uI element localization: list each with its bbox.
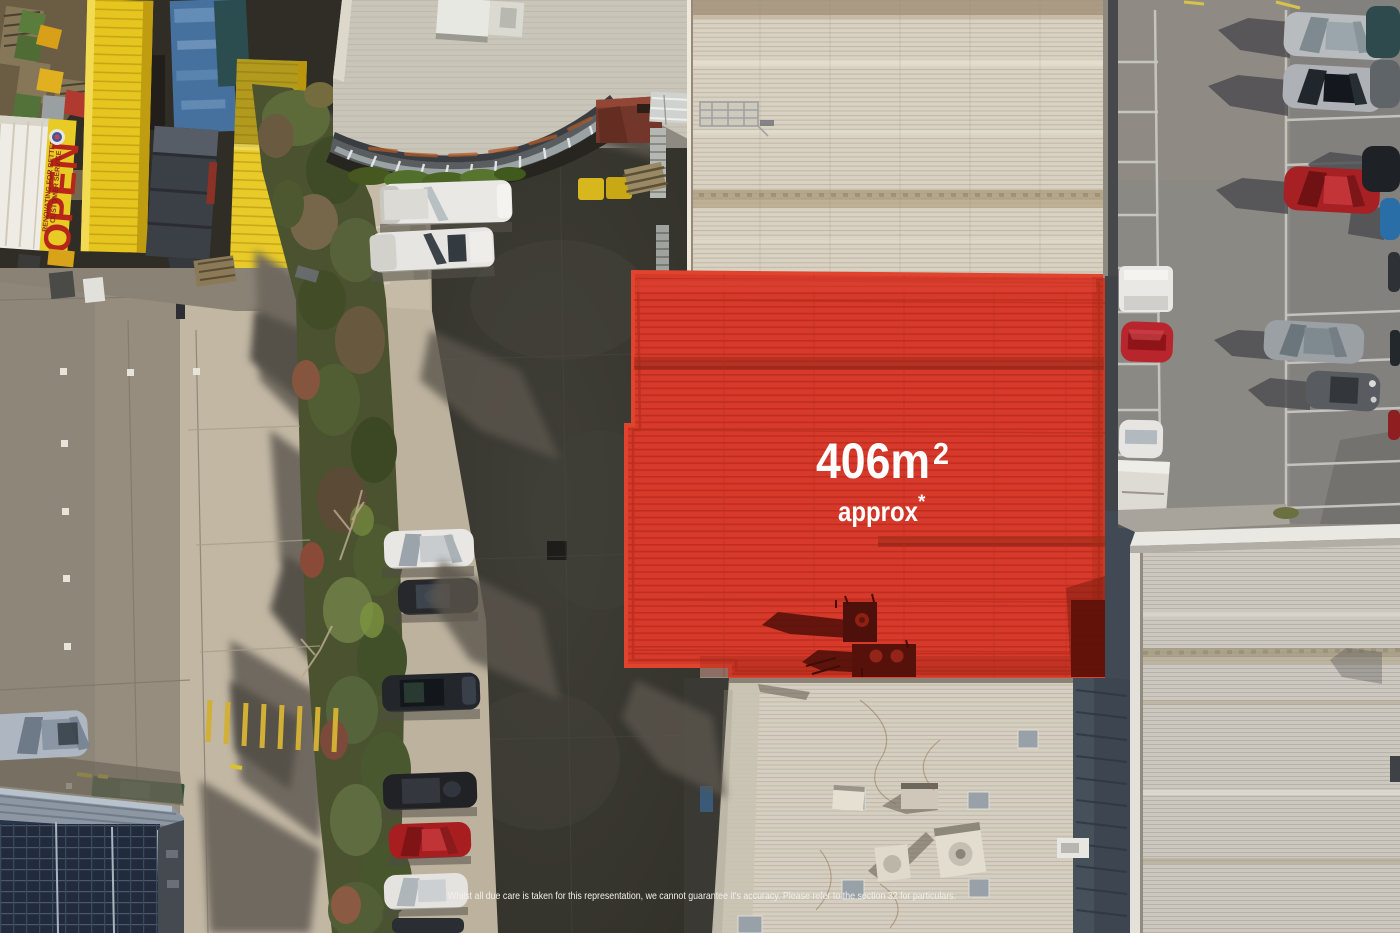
svg-text:406m: 406m: [816, 433, 930, 489]
svg-text:*: *: [918, 492, 926, 513]
svg-text:Whilst all due care is taken f: Whilst all due care is taken for this re…: [448, 890, 956, 902]
svg-text:approx: approx: [838, 496, 918, 527]
svg-text:2: 2: [933, 436, 949, 471]
